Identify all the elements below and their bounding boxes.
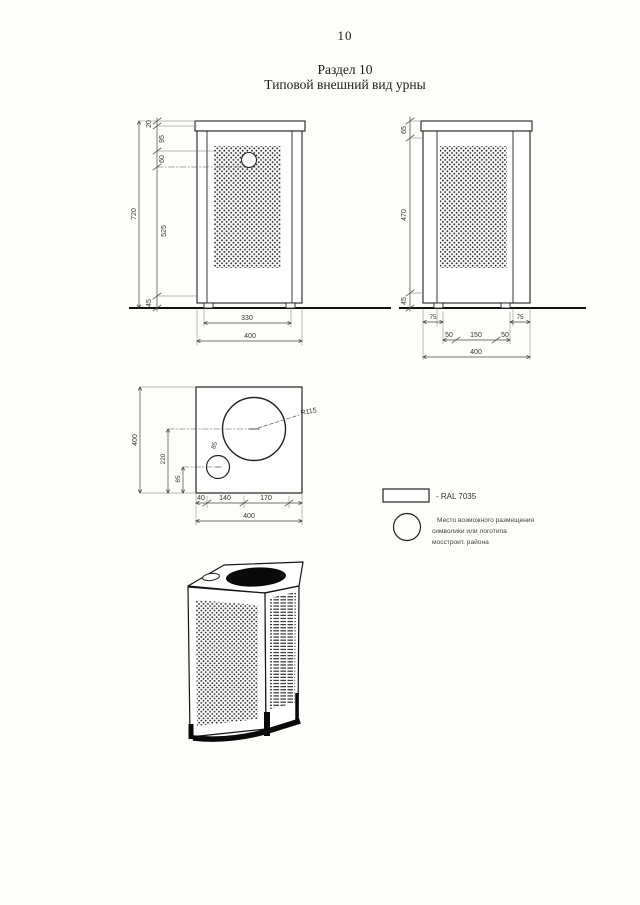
bin-foot: [204, 303, 213, 308]
document-page: 10 Раздел 10 Типовой внешний вид урны: [0, 0, 640, 905]
dim-front-total-width: 400: [244, 333, 256, 340]
dim-side-foot-right: 50: [501, 332, 509, 339]
dim-plan-center-big: 220: [160, 453, 167, 464]
dim-side-total-depth: 400: [470, 349, 482, 356]
dim-plan-outer: 400: [132, 434, 139, 446]
dim-side-edge-right: 75: [516, 314, 524, 321]
dim-front-panel: 525: [161, 225, 168, 237]
side-perforation: [270, 592, 296, 709]
legend-note-line2: символики или логотипа: [432, 528, 507, 535]
dim-side-base: 45: [401, 297, 408, 305]
ral-color-swatch: [383, 489, 429, 502]
ral-swatch-label: - RAL 7035: [436, 492, 477, 501]
dim-side-middle: 470: [401, 209, 408, 221]
dim-plan-total: 400: [243, 513, 255, 520]
front-perforation: [196, 600, 258, 726]
dim-side-top: 65: [401, 126, 408, 134]
dim-front-top-band: 95: [159, 135, 166, 143]
dim-side-edge-left: 75: [429, 314, 437, 321]
logo-placement-circle: [394, 514, 421, 541]
label-big-circle-radius: R115: [300, 407, 317, 417]
side-elevation-view: 65 470 45 75 75 50 150 50 400: [400, 117, 585, 360]
dim-side-center: 150: [470, 332, 482, 339]
legend-note-line1: Место возможного размещения: [437, 517, 534, 524]
front-elevation-view: 20 95 60 525 45 720 330 400: [130, 118, 390, 345]
technical-drawing: 20 95 60 525 45 720 330 400: [0, 0, 640, 905]
front-hole: [242, 153, 257, 168]
dim-plan-center-small: 85: [175, 475, 182, 483]
front-total-height-dimension: [139, 121, 195, 308]
dim-plan-seg2: 140: [219, 495, 231, 502]
bin-top-cap: [421, 121, 532, 131]
dim-front-base: 45: [146, 299, 153, 307]
dim-front-hole: 60: [159, 155, 166, 163]
perspective-view: [188, 562, 303, 739]
dim-side-foot-left: 50: [445, 332, 453, 339]
dim-plan-seg3: 170: [260, 495, 272, 502]
plan-bottom-dimensions: [196, 493, 302, 525]
legend-note-line3: мосстроит. района: [432, 538, 489, 546]
legend: - RAL 7035 Место возможного размещения с…: [383, 489, 534, 546]
side-height-dimensions: [406, 117, 423, 311]
dim-front-inner-width: 330: [241, 315, 253, 322]
dim-front-total-height: 720: [131, 208, 138, 220]
bin-top-cap: [195, 121, 305, 131]
bin-foot: [434, 303, 443, 308]
dim-plan-seg1: 40: [197, 495, 205, 502]
bin-foot: [501, 303, 510, 308]
perforated-panel: [440, 146, 507, 268]
plan-view: R115 85 400 220 85: [132, 387, 317, 525]
bin-foot: [286, 303, 295, 308]
